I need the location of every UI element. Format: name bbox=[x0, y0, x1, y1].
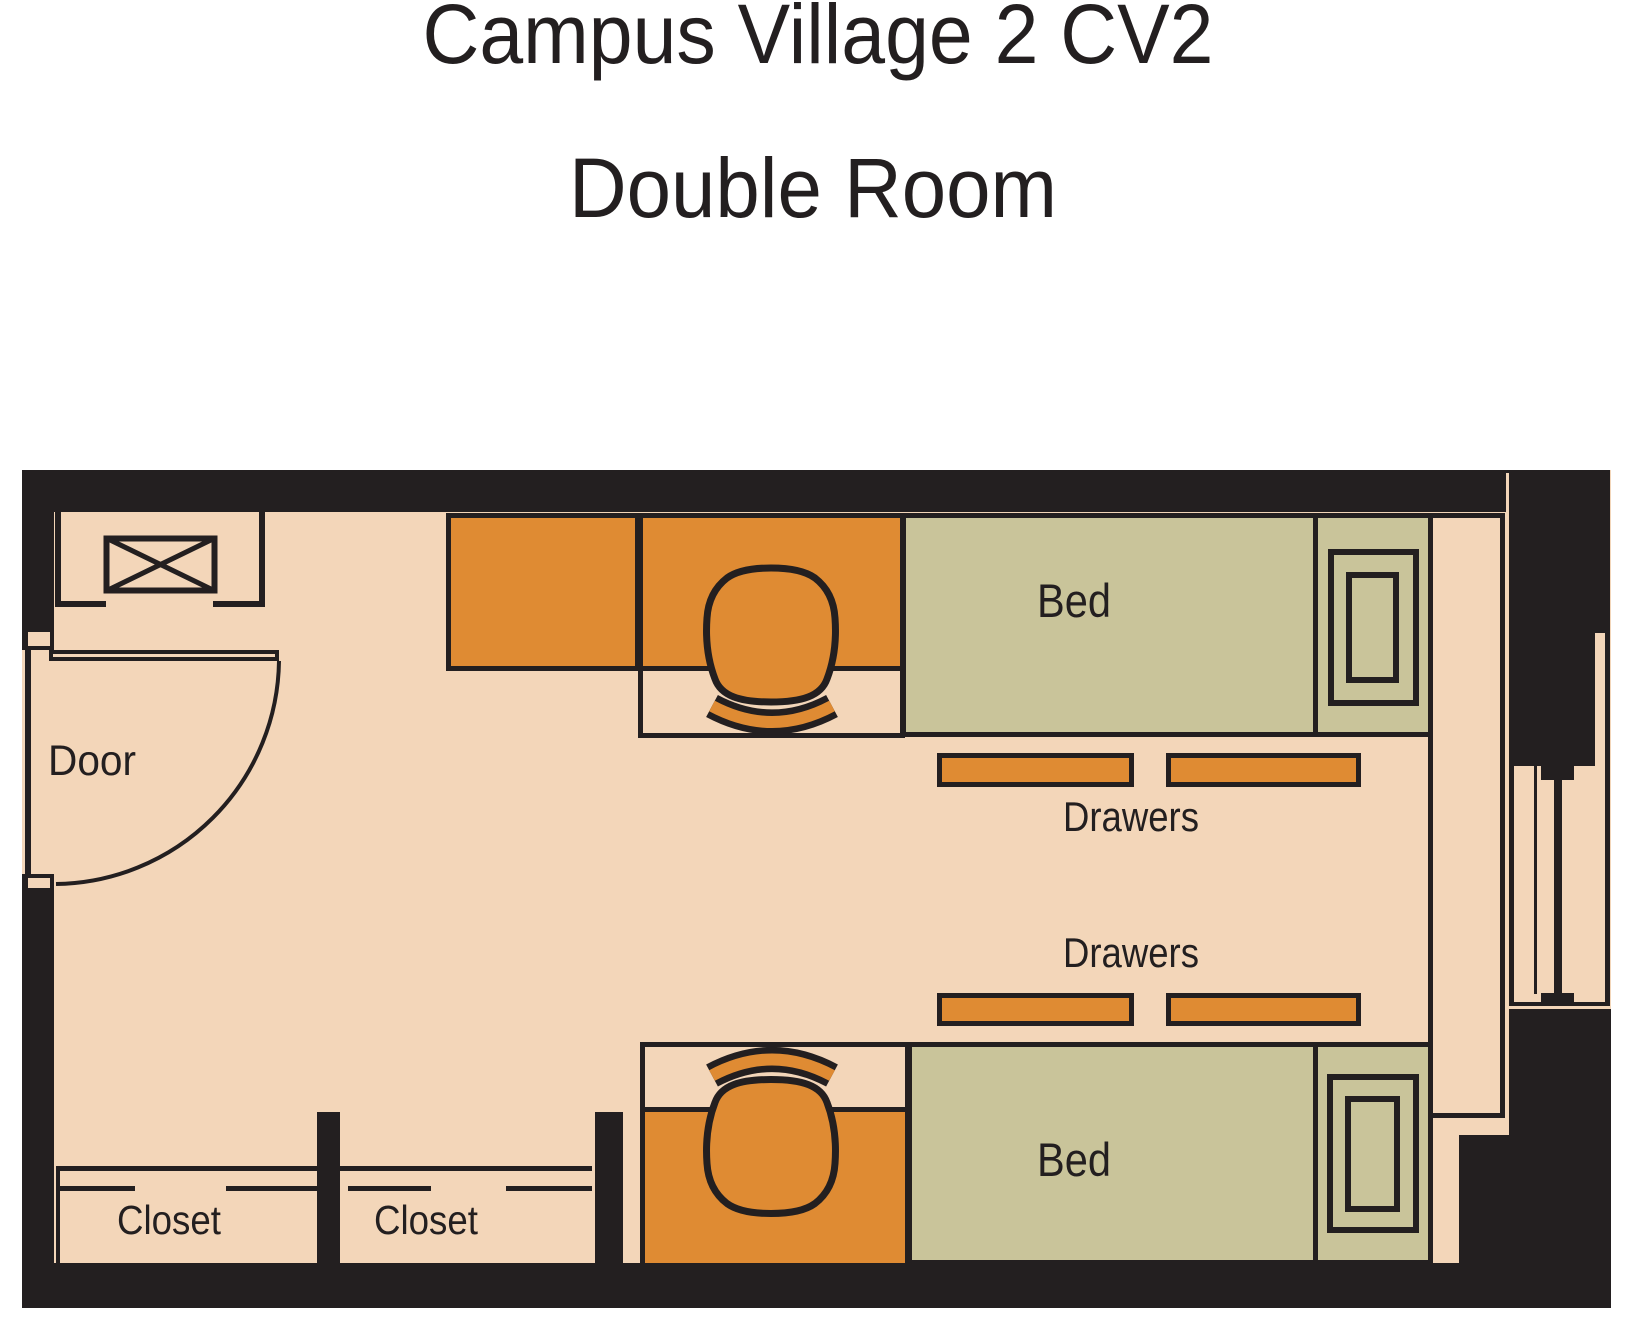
svg-text:Campus Village 2 CV2: Campus Village 2 CV2 bbox=[423, 0, 1214, 81]
svg-text:Bed: Bed bbox=[1037, 1133, 1111, 1186]
svg-text:Closet: Closet bbox=[117, 1197, 222, 1243]
svg-text:Drawers: Drawers bbox=[1063, 929, 1199, 976]
svg-text:Closet: Closet bbox=[374, 1197, 479, 1243]
svg-text:Double Room: Double Room bbox=[569, 141, 1057, 235]
svg-text:Bed: Bed bbox=[1037, 574, 1111, 627]
svg-text:Drawers: Drawers bbox=[1063, 793, 1199, 840]
svg-text:Door: Door bbox=[48, 737, 136, 785]
